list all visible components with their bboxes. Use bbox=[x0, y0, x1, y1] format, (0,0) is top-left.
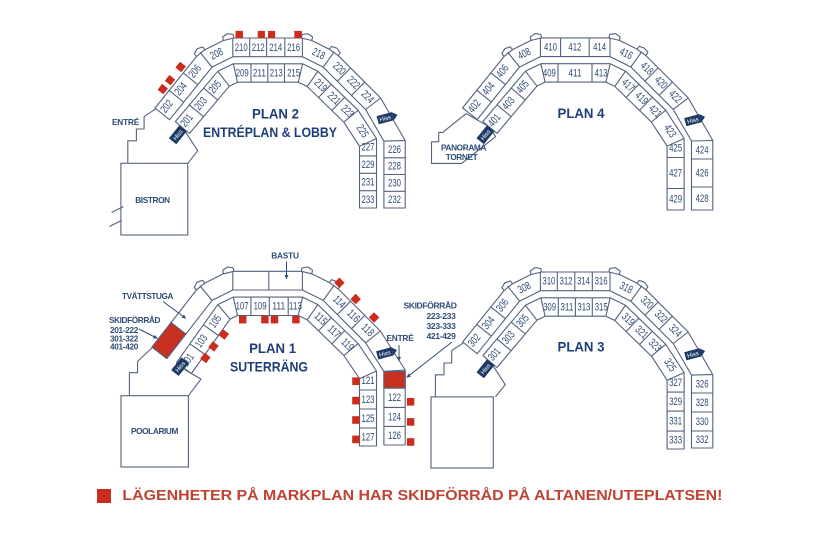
svg-text:310: 310 bbox=[542, 276, 555, 288]
svg-text:331: 331 bbox=[669, 416, 682, 428]
svg-text:107: 107 bbox=[236, 301, 249, 313]
svg-text:LÄGENHETER PÅ MARKPLAN HAR SKI: LÄGENHETER PÅ MARKPLAN HAR SKIDFÖRRÅD PÅ… bbox=[122, 487, 722, 504]
svg-text:426: 426 bbox=[696, 167, 709, 179]
svg-text:314: 314 bbox=[577, 276, 590, 288]
svg-text:PLAN 2: PLAN 2 bbox=[252, 106, 299, 122]
svg-text:113: 113 bbox=[289, 301, 302, 313]
svg-text:424: 424 bbox=[696, 144, 709, 156]
svg-text:BASTU: BASTU bbox=[271, 251, 299, 261]
svg-text:429: 429 bbox=[669, 194, 682, 206]
svg-text:414: 414 bbox=[593, 42, 606, 54]
svg-text:209: 209 bbox=[236, 67, 249, 79]
svg-text:PANORAMA: PANORAMA bbox=[441, 143, 486, 153]
svg-text:122: 122 bbox=[388, 392, 401, 404]
svg-text:223-233: 223-233 bbox=[427, 312, 457, 321]
svg-text:329: 329 bbox=[669, 396, 682, 408]
svg-text:313: 313 bbox=[577, 301, 590, 313]
svg-text:SKIDFÖRRÅD: SKIDFÖRRÅD bbox=[404, 301, 457, 311]
svg-text:SUTERRÄNG: SUTERRÄNG bbox=[230, 359, 308, 375]
svg-text:212: 212 bbox=[252, 42, 265, 54]
svg-text:213: 213 bbox=[270, 67, 283, 79]
svg-text:111: 111 bbox=[272, 301, 285, 313]
svg-text:401-420: 401-420 bbox=[110, 343, 139, 352]
svg-text:SKIDFÖRRÅD: SKIDFÖRRÅD bbox=[109, 315, 160, 325]
svg-text:BISTRON: BISTRON bbox=[135, 195, 170, 205]
svg-text:412: 412 bbox=[568, 42, 581, 54]
svg-text:POOLARIUM: POOLARIUM bbox=[131, 426, 179, 436]
svg-text:229: 229 bbox=[362, 159, 375, 171]
svg-text:124: 124 bbox=[388, 411, 401, 423]
svg-text:233: 233 bbox=[362, 194, 375, 206]
svg-text:ENTRÉPLAN & LOBBY: ENTRÉPLAN & LOBBY bbox=[203, 124, 338, 140]
svg-text:215: 215 bbox=[287, 67, 300, 79]
svg-text:PLAN 3: PLAN 3 bbox=[558, 339, 605, 355]
svg-text:409: 409 bbox=[543, 67, 556, 79]
svg-text:309: 309 bbox=[543, 301, 556, 313]
svg-text:121: 121 bbox=[362, 375, 375, 387]
svg-text:TORNET: TORNET bbox=[446, 152, 478, 162]
svg-text:316: 316 bbox=[595, 276, 608, 288]
svg-text:127: 127 bbox=[362, 431, 375, 443]
svg-text:227: 227 bbox=[362, 142, 375, 154]
svg-text:332: 332 bbox=[696, 434, 709, 446]
svg-text:ENTRÉ: ENTRÉ bbox=[386, 333, 414, 343]
svg-text:312: 312 bbox=[560, 276, 573, 288]
svg-text:328: 328 bbox=[696, 397, 709, 409]
svg-text:211: 211 bbox=[253, 67, 266, 79]
svg-text:228: 228 bbox=[388, 161, 401, 173]
svg-text:410: 410 bbox=[544, 42, 557, 54]
svg-text:330: 330 bbox=[696, 416, 709, 428]
svg-text:425: 425 bbox=[669, 142, 682, 154]
svg-text:315: 315 bbox=[595, 301, 608, 313]
svg-text:428: 428 bbox=[696, 193, 709, 205]
svg-text:427: 427 bbox=[669, 167, 682, 179]
svg-text:323-333: 323-333 bbox=[427, 322, 457, 331]
svg-text:210: 210 bbox=[235, 42, 248, 54]
svg-text:216: 216 bbox=[287, 42, 300, 54]
svg-text:326: 326 bbox=[696, 378, 709, 390]
svg-text:226: 226 bbox=[388, 144, 401, 156]
svg-text:231: 231 bbox=[362, 176, 375, 188]
svg-text:125: 125 bbox=[362, 413, 375, 425]
svg-text:311: 311 bbox=[560, 301, 573, 313]
svg-text:230: 230 bbox=[388, 177, 401, 189]
svg-text:327: 327 bbox=[669, 377, 682, 389]
svg-text:ENTRÉ: ENTRÉ bbox=[112, 117, 140, 127]
svg-text:232: 232 bbox=[388, 194, 401, 206]
svg-text:421-429: 421-429 bbox=[427, 332, 457, 341]
svg-text:126: 126 bbox=[388, 430, 401, 442]
svg-text:TVÄTTSTUGA: TVÄTTSTUGA bbox=[122, 291, 173, 301]
svg-text:PLAN 4: PLAN 4 bbox=[558, 105, 605, 121]
svg-text:214: 214 bbox=[269, 42, 282, 54]
svg-text:333: 333 bbox=[669, 434, 682, 446]
svg-text:413: 413 bbox=[595, 67, 608, 79]
svg-text:123: 123 bbox=[362, 394, 375, 406]
svg-text:PLAN 1: PLAN 1 bbox=[249, 340, 296, 356]
svg-text:109: 109 bbox=[254, 301, 267, 313]
svg-text:411: 411 bbox=[569, 67, 582, 79]
